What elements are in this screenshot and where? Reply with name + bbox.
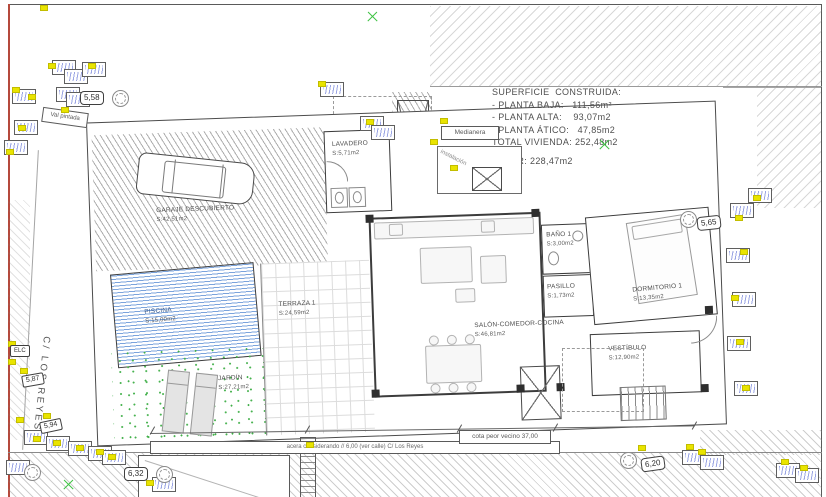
- summary-heading: SUPERFICIE CONSTRUIDA:: [492, 86, 621, 99]
- survey-point-highlight: [736, 339, 744, 345]
- summary-planta-alta: - PLANTA ALTA: 93,07m2: [492, 111, 621, 124]
- column: [531, 209, 539, 217]
- survey-point-highlight: [686, 444, 694, 450]
- column: [372, 389, 380, 397]
- survey-point-highlight: [28, 94, 36, 100]
- level-marker-565: 5,65: [696, 215, 721, 231]
- street-hatch-left: [8, 200, 30, 440]
- survey-point-highlight: [61, 107, 69, 113]
- survey-point-highlight: [108, 454, 116, 460]
- column: [516, 384, 524, 392]
- stair-shaft-x: [520, 365, 562, 420]
- washer-fixture: [330, 187, 348, 208]
- survey-point-highlight: [430, 139, 438, 145]
- survey-cross-icon: [366, 10, 379, 23]
- dining-table: [425, 344, 482, 384]
- sunbed: [190, 373, 218, 437]
- boundary-line-right: [723, 87, 821, 88]
- street-hatch-bottom-right: [700, 430, 822, 455]
- terrace: TERRAZA 1 S:24,59m2: [260, 260, 375, 436]
- room-label-pasillo: PASILLO S:1,73m2: [547, 283, 576, 301]
- survey-point-highlight: [731, 295, 739, 301]
- survey-point-highlight: [96, 449, 104, 455]
- medianera-label: Medianera: [441, 126, 499, 140]
- survey-point-highlight: [18, 125, 26, 131]
- dining-chair: [448, 383, 458, 393]
- column: [705, 306, 713, 314]
- survey-point-highlight: [740, 249, 748, 255]
- summary-planta-baja: - PLANTA BAJA: 111,56m²: [492, 99, 621, 112]
- manhole-icon: [620, 452, 637, 469]
- kitchen-sink: [389, 224, 403, 236]
- room-label-garaje: GARAJE DESCUBIERTO S:42,51m2: [156, 204, 235, 224]
- room-label-lavadero: LAVADERO S:5,71m2: [332, 140, 369, 158]
- room-label-dormitorio: DORMITORIO 1 S:13,35m2: [632, 282, 683, 303]
- survey-point-highlight: [440, 118, 448, 124]
- room-label-jardin: JARDÍN S:27,21m2: [218, 374, 249, 392]
- survey-point-highlight: [781, 459, 789, 465]
- survey-point-highlight: [306, 442, 314, 448]
- level-marker-558: 5,58: [80, 91, 104, 105]
- room-label-piscina: PISCINA S:15,00m2: [144, 306, 176, 325]
- survey-point-highlight: [318, 81, 326, 87]
- survey-point-highlight: [735, 215, 743, 221]
- survey-point-highlight: [6, 149, 14, 155]
- survey-cross-icon: [598, 138, 611, 151]
- sunbed: [162, 370, 190, 434]
- survey-point-highlight: [16, 417, 24, 423]
- survey-annotation-box: [371, 125, 395, 140]
- toilet-fixture: [548, 251, 559, 265]
- survey-point-highlight: [146, 480, 154, 486]
- survey-point-highlight: [12, 87, 20, 93]
- survey-point-highlight: [88, 63, 96, 69]
- survey-annotation-box: [700, 455, 724, 470]
- coffee-table: [455, 288, 475, 303]
- dining-chair: [466, 382, 476, 392]
- sheet-border-top: [8, 4, 822, 5]
- garden: JARDÍN S:27,21m2: [111, 347, 276, 443]
- survey-point-highlight: [742, 385, 750, 391]
- column: [701, 384, 709, 392]
- neighbour-hatch-top: [430, 6, 822, 87]
- instalacion-equipment-x: [472, 167, 502, 191]
- survey-point-highlight: [698, 449, 706, 455]
- dryer-fixture: [348, 187, 366, 208]
- neighbor-level-note: cota peor vecino 37,00: [459, 430, 551, 444]
- survey-point-highlight: [33, 436, 41, 442]
- survey-point-highlight: [366, 119, 374, 125]
- manhole-icon: [156, 466, 173, 483]
- survey-cross-icon: [62, 478, 75, 491]
- survey-point-highlight: [53, 440, 61, 446]
- sofa: [420, 246, 473, 284]
- survey-point-highlight: [8, 359, 16, 365]
- sink-fixture: [572, 230, 583, 241]
- survey-point-highlight: [753, 195, 761, 201]
- survey-point-highlight: [43, 413, 51, 419]
- dining-chair: [429, 335, 439, 345]
- dining-chair: [465, 334, 475, 344]
- room-label-terraza: TERRAZA 1 S:24,59m2: [278, 300, 316, 318]
- room-label-bano: BAÑO 1 S:3,00m2: [546, 231, 574, 249]
- survey-point-highlight: [48, 63, 56, 69]
- summary-planta-atico: - PLANTA ÁTICO: 47,85m2: [492, 124, 621, 137]
- bed-pillow: [631, 219, 683, 241]
- door-arc-vestibulo: [690, 316, 718, 344]
- armchair: [480, 255, 507, 284]
- manhole-icon: [112, 90, 129, 107]
- floor-plan-canvas: GARAJE DESCUBIERTO S:42,51m2 LAVADERO S:…: [0, 0, 826, 497]
- survey-point-highlight: [450, 165, 458, 171]
- level-marker-632: 6,32: [124, 467, 148, 481]
- column: [365, 215, 373, 223]
- manhole-icon: [680, 211, 697, 228]
- survey-point-highlight: [40, 5, 48, 11]
- level-marker-elc: ELC: [10, 345, 30, 357]
- manhole-icon: [24, 464, 41, 481]
- survey-point-highlight: [800, 465, 808, 471]
- dining-chair: [447, 335, 457, 345]
- room-label-salon: SALÓN-COMEDOR-COCINA S:46,81m2: [474, 319, 564, 339]
- survey-point-highlight: [20, 368, 28, 374]
- survey-point-highlight: [638, 445, 646, 451]
- survey-point-highlight: [76, 445, 84, 451]
- kitchen-hob: [481, 220, 495, 232]
- dining-chair: [430, 383, 440, 393]
- overhang-dashed-vestibulo: [562, 348, 644, 412]
